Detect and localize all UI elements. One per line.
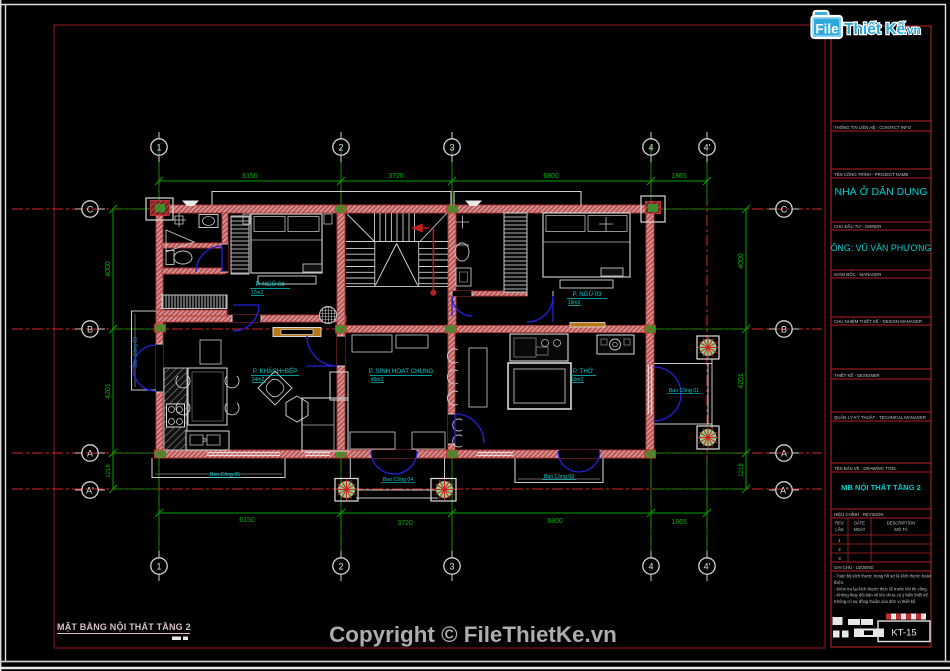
svg-text:3: 3 — [449, 561, 454, 571]
svg-text:1: 1 — [156, 561, 161, 571]
svg-text:Thiết Kế: Thiết Kế — [844, 21, 906, 38]
svg-text:MB NỘI THẤT TẦNG 2: MB NỘI THẤT TẦNG 2 — [841, 482, 921, 492]
svg-text:THIẾT KẾ - DESIGNER: THIẾT KẾ - DESIGNER — [834, 373, 880, 378]
svg-text:A': A' — [780, 485, 788, 495]
svg-text:1: 1 — [156, 142, 161, 152]
svg-text:Copyright © FileThietKe.vn: Copyright © FileThietKe.vn — [329, 622, 617, 647]
svg-text:1865: 1865 — [671, 173, 687, 180]
svg-text:Ban Công 03: Ban Công 03 — [133, 337, 139, 367]
svg-text:4201: 4201 — [105, 383, 112, 399]
svg-text:GHI CHÚ - LEGEND: GHI CHÚ - LEGEND — [834, 565, 874, 570]
svg-text:16m2: 16m2 — [568, 300, 581, 306]
svg-text:MẶT BẰNG NỘI THẤT TẦNG 2: MẶT BẰNG NỘI THẤT TẦNG 2 — [57, 621, 191, 632]
svg-text:- Kiểm tra lại kích thước thực: - Kiểm tra lại kích thước thực tế trước … — [834, 586, 928, 591]
svg-text:Ban Công 04: Ban Công 04 — [383, 477, 413, 483]
svg-text:10m2: 10m2 — [571, 377, 584, 383]
svg-text:C: C — [87, 204, 94, 214]
svg-text:GIÁM ĐỐC - MANAGER: GIÁM ĐỐC - MANAGER — [834, 272, 881, 277]
svg-text:B: B — [781, 324, 787, 334]
svg-text:1865: 1865 — [671, 519, 687, 526]
svg-text:Không có sự đồng thuận của đơn: Không có sự đồng thuận của đơn vị thiết … — [834, 599, 916, 604]
svg-text:4': 4' — [704, 142, 711, 152]
svg-text:C: C — [781, 204, 788, 214]
svg-text:4: 4 — [648, 142, 653, 152]
svg-text:17m2: 17m2 — [251, 290, 264, 296]
svg-text:.vn: .vn — [904, 23, 921, 37]
svg-text:A: A — [87, 448, 93, 458]
svg-text:DATE: DATE — [854, 521, 865, 526]
svg-text:6800: 6800 — [543, 173, 559, 180]
svg-text:MÔ TẢ: MÔ TẢ — [894, 527, 907, 532]
svg-text:3: 3 — [838, 556, 841, 561]
svg-text:thiện.: thiện. — [834, 580, 844, 585]
svg-text:- Toàn bộ kích thước trong hồ: - Toàn bộ kích thước trong hồ sơ là kích… — [834, 574, 932, 579]
svg-text:Ban Công 02: Ban Công 02 — [544, 474, 574, 480]
svg-text:P. NGỦ 04: P. NGỦ 04 — [255, 281, 285, 288]
svg-text:6150: 6150 — [239, 517, 255, 524]
svg-text:P. KHÁCH+BẾP: P. KHÁCH+BẾP — [253, 368, 297, 375]
svg-text:P. NGỦ 03: P. NGỦ 03 — [572, 291, 602, 298]
svg-text:1218: 1218 — [739, 463, 745, 477]
svg-text:4201: 4201 — [738, 373, 745, 389]
svg-text:2: 2 — [338, 142, 343, 152]
svg-text:3720: 3720 — [397, 520, 413, 527]
svg-text:Ban Công 05: Ban Công 05 — [210, 472, 240, 478]
svg-text:45m2: 45m2 — [371, 377, 384, 383]
svg-text:KT-15: KT-15 — [891, 628, 916, 639]
svg-text:TÊN BẢN VẼ - DRAWING TITEL: TÊN BẢN VẼ - DRAWING TITEL — [834, 466, 897, 471]
svg-text:CHỦ ĐẦU TƯ - OWNER: CHỦ ĐẦU TƯ - OWNER — [834, 224, 881, 229]
svg-text:A: A — [781, 448, 787, 458]
svg-text:File: File — [815, 22, 839, 37]
svg-text:6150: 6150 — [242, 173, 258, 180]
svg-text:DESCRIPTION: DESCRIPTION — [887, 521, 916, 526]
svg-text:NGÀY: NGÀY — [854, 527, 866, 532]
svg-text:P. SINH HOẠT CHUNG: P. SINH HOẠT CHUNG — [369, 368, 434, 375]
svg-text:34m2: 34m2 — [252, 377, 265, 383]
svg-text:4000: 4000 — [105, 261, 112, 277]
svg-text:6800: 6800 — [547, 518, 563, 525]
svg-text:QUẢN LÝ KỸ THUẬT - TECHNICAL M: QUẢN LÝ KỸ THUẬT - TECHNICAL MANAGER — [834, 415, 926, 420]
svg-text:LẦN: LẦN — [835, 527, 843, 532]
svg-text:HIỆU CHỈNH - REVISION: HIỆU CHỈNH - REVISION — [834, 512, 883, 517]
svg-text:- Không thay đổi bản vẽ khi ch: - Không thay đổi bản vẽ khi chưa có ý ki… — [834, 593, 929, 598]
svg-text:CHỦ NHIỆM THIẾT KẾ - DESIGN MA: CHỦ NHIỆM THIẾT KẾ - DESIGN MANAGER — [834, 319, 922, 324]
svg-text:NHÀ Ở DÂN DỤNG: NHÀ Ở DÂN DỤNG — [834, 185, 927, 198]
svg-text:A': A' — [86, 485, 94, 495]
svg-text:B: B — [87, 324, 93, 334]
svg-text:3720: 3720 — [388, 173, 404, 180]
svg-text:3: 3 — [449, 142, 454, 152]
svg-text:4: 4 — [648, 561, 653, 571]
svg-text:P. THỜ: P. THỜ — [573, 368, 594, 375]
svg-text:THÔNG TIN LIÊN HỆ - CONTACT IN: THÔNG TIN LIÊN HỆ - CONTACT INFO — [834, 125, 912, 130]
svg-text:ÔNG: VŨ VĂN PHƯƠNG: ÔNG: VŨ VĂN PHƯƠNG — [831, 243, 932, 253]
svg-text:4': 4' — [704, 561, 711, 571]
svg-text:1218: 1218 — [106, 464, 112, 478]
svg-text:TÊN CÔNG TRÌNH - PROJECT NAME: TÊN CÔNG TRÌNH - PROJECT NAME — [834, 172, 908, 177]
svg-text:4000: 4000 — [738, 253, 745, 269]
svg-text:REV: REV — [835, 521, 844, 526]
svg-text:Ban Công 01: Ban Công 01 — [669, 388, 699, 394]
svg-text:2: 2 — [838, 547, 841, 552]
svg-text:2: 2 — [338, 561, 343, 571]
svg-text:1: 1 — [838, 538, 841, 543]
